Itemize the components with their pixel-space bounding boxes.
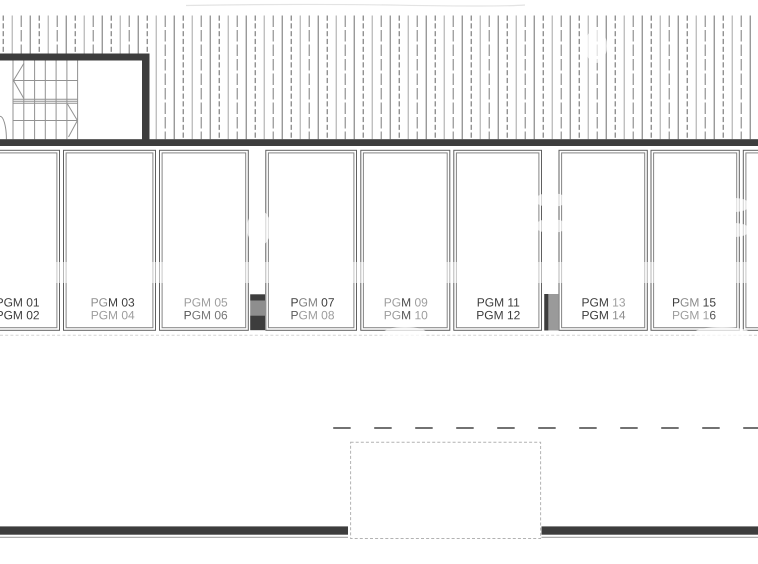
svg-text:PGM 04: PGM 04 xyxy=(91,308,135,322)
svg-text:PGM 06: PGM 06 xyxy=(184,308,228,322)
svg-text:PGM 02: PGM 02 xyxy=(0,308,40,322)
svg-text:PGM 14: PGM 14 xyxy=(581,308,625,322)
svg-text:PGM 10: PGM 10 xyxy=(384,308,428,322)
svg-text:PGM 16: PGM 16 xyxy=(672,308,716,322)
svg-text:PGM 12: PGM 12 xyxy=(476,308,520,322)
svg-text:PGM 08: PGM 08 xyxy=(290,308,334,322)
